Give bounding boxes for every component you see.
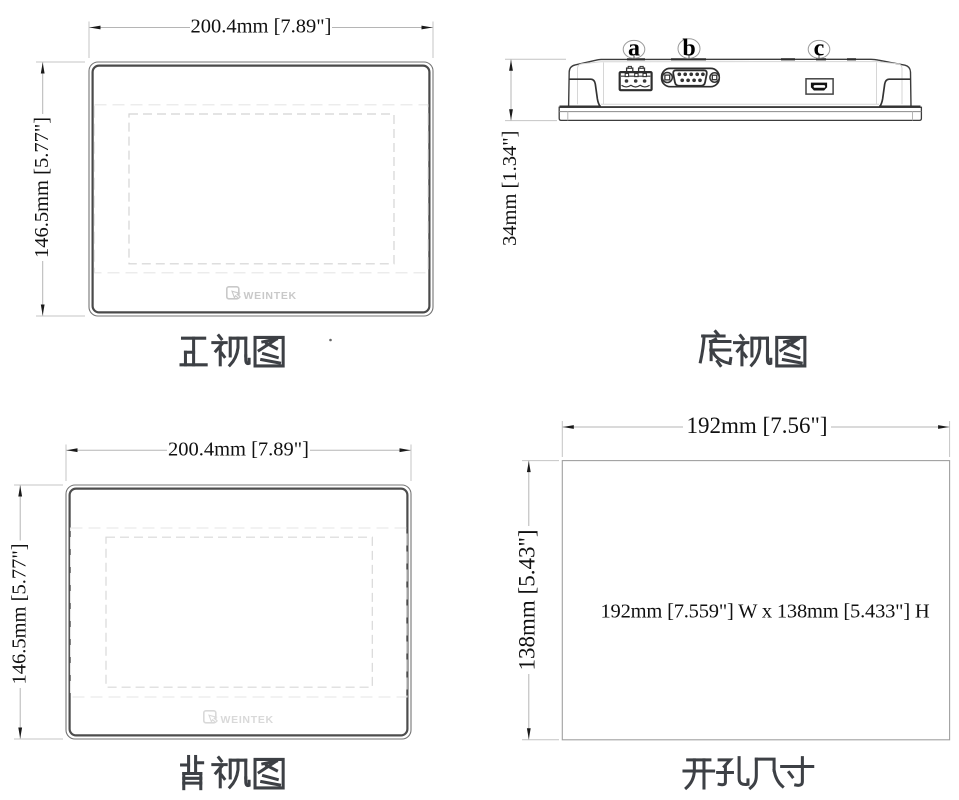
- svg-text:192mm [7.56"]: 192mm [7.56"]: [687, 413, 828, 438]
- svg-text:b: b: [682, 36, 695, 62]
- svg-text:34mm [1.34"]: 34mm [1.34"]: [499, 131, 521, 246]
- svg-text:200.4mm [7.89"]: 200.4mm [7.89"]: [168, 438, 309, 460]
- svg-text:WEINTEK: WEINTEK: [221, 714, 274, 726]
- svg-text:146.5mm [5.77"]: 146.5mm [5.77"]: [8, 543, 30, 684]
- svg-text:192mm [7.559"] W x 138mm [5.43: 192mm [7.559"] W x 138mm [5.433"] H: [601, 601, 930, 623]
- svg-text:WEINTEK: WEINTEK: [244, 290, 297, 302]
- svg-text:200.4mm [7.89"]: 200.4mm [7.89"]: [190, 16, 331, 38]
- svg-text:138mm [5.43"]: 138mm [5.43"]: [515, 530, 540, 671]
- svg-text:146.5mm [5.77"]: 146.5mm [5.77"]: [31, 117, 53, 258]
- svg-text:a: a: [628, 36, 640, 62]
- svg-text:c: c: [814, 36, 825, 62]
